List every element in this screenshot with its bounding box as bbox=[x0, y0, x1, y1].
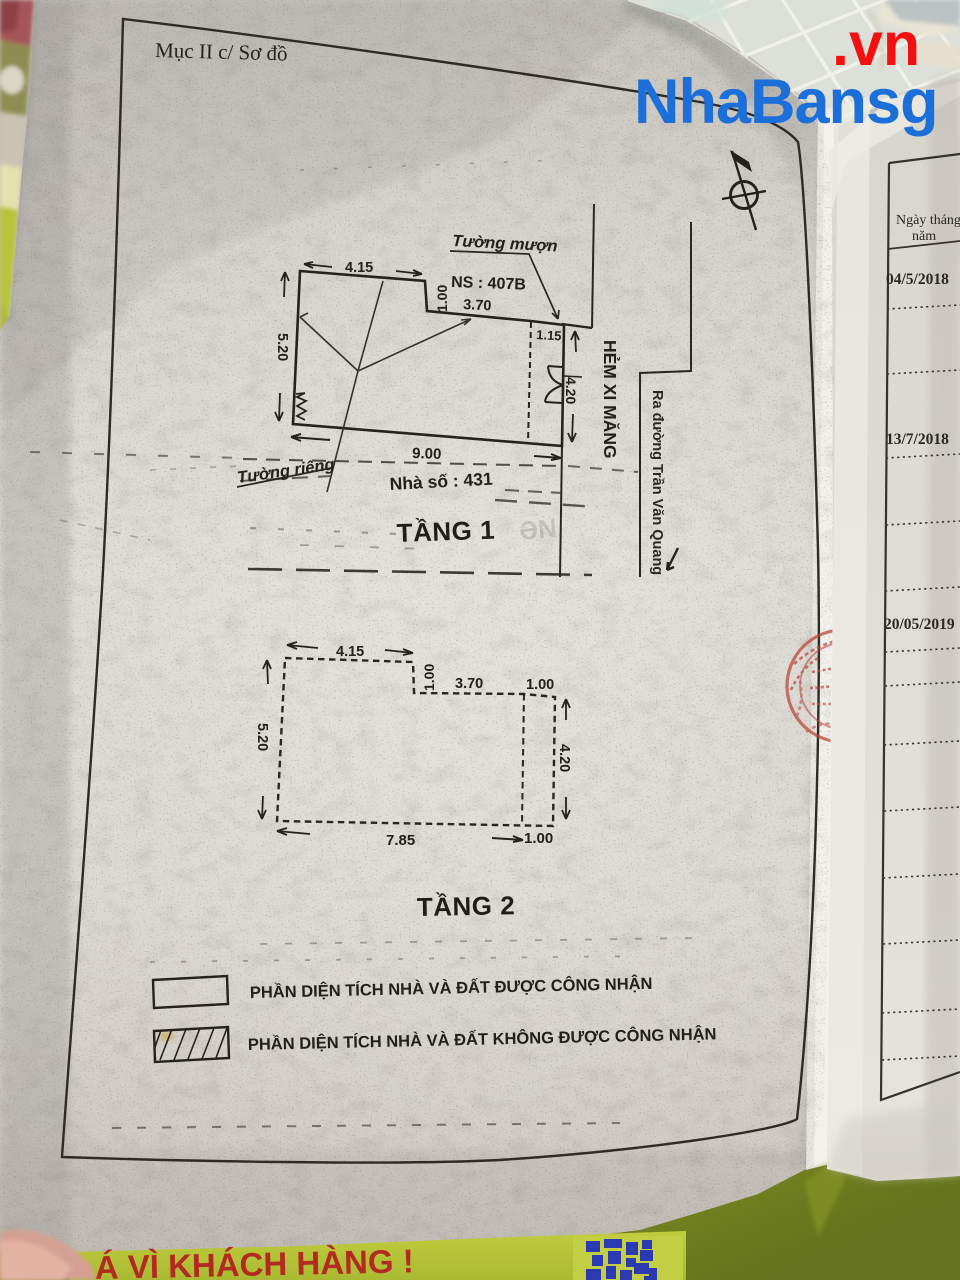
svg-text:Á VÌ KHÁCH HÀNG !: Á VÌ KHÁCH HÀNG ! bbox=[94, 1242, 414, 1280]
svg-text:TẦNG 2: TẦNG 2 bbox=[417, 890, 516, 922]
svg-text:4.15: 4.15 bbox=[336, 644, 364, 660]
svg-text:9.00: 9.00 bbox=[412, 445, 442, 463]
svg-text:13/7/2018: 13/7/2018 bbox=[886, 431, 949, 448]
svg-text:20/05/2019: 20/05/2019 bbox=[884, 616, 955, 633]
svg-text:Mục II c/ Sơ đồ: Mục II c/ Sơ đồ bbox=[155, 38, 288, 65]
svg-text:năm: năm bbox=[912, 229, 936, 244]
svg-text:4.20: 4.20 bbox=[556, 744, 572, 772]
svg-text:NS : 407B: NS : 407B bbox=[451, 274, 526, 294]
svg-text:4.15: 4.15 bbox=[345, 260, 373, 276]
svg-text:TẦNG 1: TẦNG 1 bbox=[396, 515, 495, 548]
svg-text:3.70: 3.70 bbox=[455, 676, 483, 692]
svg-text:7.85: 7.85 bbox=[386, 832, 415, 849]
svg-text:3.70: 3.70 bbox=[463, 297, 492, 314]
svg-text:.vn: .vn bbox=[832, 10, 920, 78]
svg-text:HẺM XI MĂNG: HẺM XI MĂNG bbox=[600, 340, 621, 459]
svg-text:1.00: 1.00 bbox=[421, 664, 437, 691]
svg-text:4.20: 4.20 bbox=[563, 377, 579, 404]
svg-text:Ngày tháng: Ngày tháng bbox=[896, 213, 960, 228]
svg-text:1.00: 1.00 bbox=[434, 285, 450, 312]
svg-text:04/5/2018: 04/5/2018 bbox=[886, 271, 949, 288]
svg-text:ƏN: ƏN bbox=[518, 513, 558, 546]
svg-text:5.20: 5.20 bbox=[274, 333, 290, 361]
svg-text:1.00: 1.00 bbox=[526, 677, 554, 693]
svg-text:5.20: 5.20 bbox=[254, 723, 270, 751]
svg-text:1.15: 1.15 bbox=[536, 327, 562, 343]
svg-text:1.00: 1.00 bbox=[524, 830, 553, 847]
svg-text:Ra đường Trần Văn Quang: Ra đường Trần Văn Quang bbox=[649, 390, 665, 575]
